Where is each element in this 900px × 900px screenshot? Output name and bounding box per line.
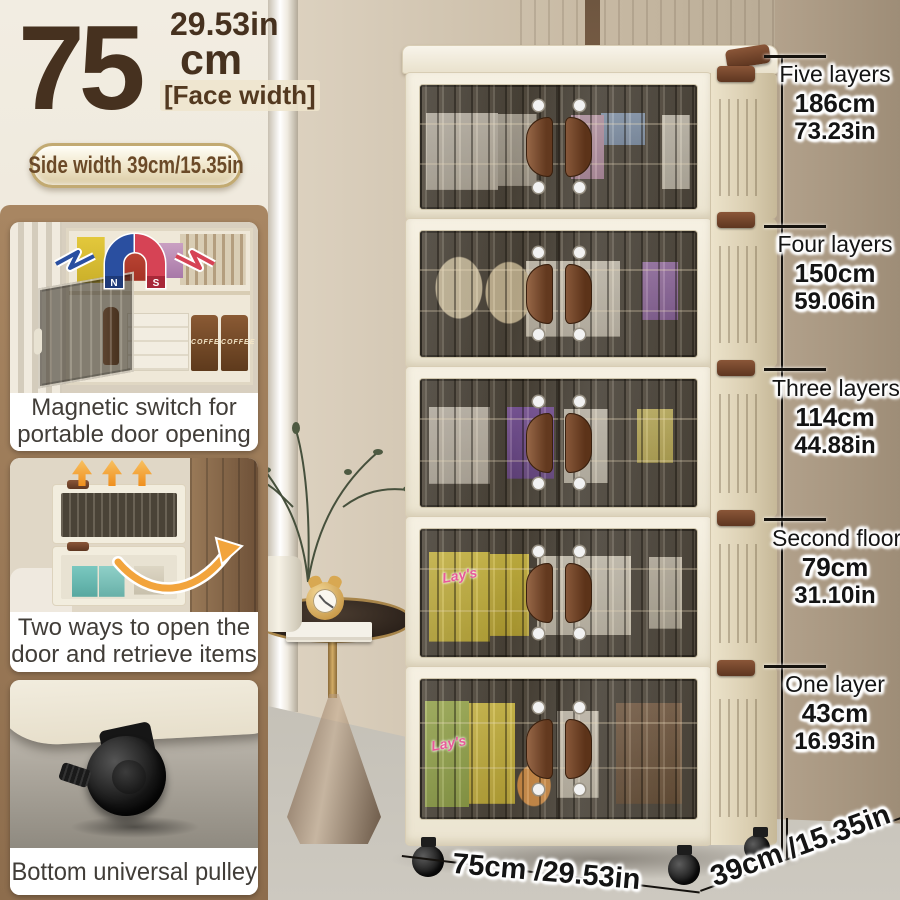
door-handle: [526, 264, 592, 324]
layer-count-label: One layer: [772, 670, 898, 698]
face-width-qualifier: [Face width]: [160, 80, 320, 111]
transparent-door: [420, 379, 697, 507]
caster-wheel-icon: [86, 736, 166, 816]
door-screws: [533, 396, 544, 407]
caption-line: door and retrieve items: [11, 642, 256, 669]
height-cm: 150cm: [772, 258, 898, 288]
door-handle: [34, 328, 42, 355]
door-screws: [533, 546, 544, 557]
feature-photo-magnet: COFFEE COFFEE N S: [10, 222, 258, 393]
transparent-door: Lay's: [420, 679, 697, 819]
door-handle: [526, 563, 592, 623]
folding-clip: [717, 360, 755, 376]
height-inches: 59.06in: [772, 288, 898, 316]
up-arrow-icon: [132, 460, 152, 486]
ruler-label-four-layers: Four layers 150cm 59.06in: [772, 230, 898, 316]
storage-box-top: [405, 72, 712, 220]
ruler-tick: [764, 55, 826, 58]
stacked-boxes: [127, 313, 189, 371]
door-handle: [526, 719, 592, 779]
feature-photo-caster: [10, 680, 258, 848]
door-screws: [533, 100, 544, 111]
layer-count-label: Four layers: [772, 230, 898, 258]
door-screws: [533, 702, 544, 713]
face-width-unit: cm: [180, 36, 242, 85]
door-handle: [526, 413, 592, 473]
transparent-door: [420, 231, 697, 357]
layer-count-label: Five layers: [772, 60, 898, 88]
folding-clip: [717, 660, 755, 676]
side-width-text: Side width 39cm/15.35in: [28, 152, 243, 180]
transparent-door: [420, 85, 697, 209]
wheel-shadow: [70, 816, 200, 838]
height-inches: 31.10in: [772, 582, 898, 610]
feature-panel: COFFEE COFFEE N S: [0, 205, 268, 900]
height-inches: 73.23in: [772, 118, 898, 146]
transparent-door: Lay's: [420, 529, 697, 657]
ruler-tick: [764, 665, 826, 668]
side-width-badge: Side width 39cm/15.35in: [30, 143, 242, 188]
ruler-tick: [764, 225, 826, 228]
caption-line: Magnetic switch for: [31, 395, 236, 422]
transparent-door: [61, 493, 177, 537]
side-vent: [719, 699, 761, 817]
feature-photo-open-ways: [10, 458, 258, 612]
curved-arrow-icon: [110, 534, 246, 604]
storage-box: [405, 218, 712, 368]
ruler-label-three-layers: Three layers 114cm 44.88in: [772, 374, 898, 460]
ruler-label-one-layer: One layer 43cm 16.93in: [772, 670, 898, 756]
cabinet-side-panel: [710, 73, 777, 219]
magnet-icon: N S: [50, 230, 220, 300]
ruler-tick: [764, 368, 826, 371]
caption-line: Two ways to open the: [18, 615, 250, 642]
layer-count-label: Three layers: [772, 374, 898, 402]
coffee-bag: COFFEE: [191, 315, 218, 371]
storage-box: Lay's: [405, 516, 712, 668]
height-inches: 16.93in: [772, 728, 898, 756]
storage-box: [405, 366, 712, 518]
feature-card-magnetic-switch: COFFEE COFFEE N S: [10, 222, 258, 451]
cabinet-side-panel: [710, 667, 777, 845]
cabinet-side-panel: [710, 367, 777, 517]
feature-card-two-way-open: Two ways to open the door and retrieve i…: [10, 458, 258, 672]
clock-face: [313, 589, 337, 613]
feature-caption: Magnetic switch for portable door openin…: [10, 393, 258, 451]
alarm-clock: [306, 582, 344, 620]
storage-box-bottom: Lay's: [405, 666, 712, 846]
box-handle: [67, 480, 89, 489]
ruler-label-second-floor: Second floor 79cm 31.10in: [772, 524, 898, 610]
door-handle: [526, 117, 592, 177]
up-arrow-icon: [102, 460, 122, 486]
height-cm: 79cm: [772, 552, 898, 582]
face-width-value: 75: [18, 8, 139, 128]
feature-caption: Two ways to open the door and retrieve i…: [10, 612, 258, 672]
height-inches: 44.88in: [772, 432, 898, 460]
box-handle: [67, 542, 89, 551]
caster-wheel: [668, 853, 700, 885]
storage-cabinet: Lay's Lay's: [400, 45, 778, 877]
height-cm: 114cm: [772, 402, 898, 432]
cabinet-side-panel: [710, 517, 777, 667]
caption-line: Bottom universal pulley: [11, 858, 257, 886]
side-vent: [719, 394, 761, 493]
layer-count-label: Second floor: [772, 524, 898, 552]
ruler-label-five-layers: Five layers 186cm 73.23in: [772, 60, 898, 146]
cabinet-side-panel: [710, 219, 777, 367]
svg-text:S: S: [153, 278, 160, 289]
coffee-bag: COFFEE: [221, 315, 248, 371]
door-screws: [533, 247, 544, 258]
side-vent: [719, 246, 761, 344]
folding-clip: [717, 212, 755, 228]
height-cm: 186cm: [772, 88, 898, 118]
side-vent: [719, 99, 761, 195]
feature-caption: Bottom universal pulley: [10, 848, 258, 895]
folding-clip: [717, 66, 755, 82]
wheel-hub: [112, 760, 146, 794]
ruler-tick: [764, 518, 826, 521]
feature-card-pulley: Bottom universal pulley: [10, 680, 258, 895]
height-cm: 43cm: [772, 698, 898, 728]
product-infographic: Lay's Lay's: [0, 0, 900, 900]
side-table-stem: [328, 640, 337, 698]
side-vent: [719, 544, 761, 643]
caption-line: portable door opening: [17, 422, 251, 449]
svg-text:N: N: [110, 278, 117, 289]
folding-clip: [717, 510, 755, 526]
